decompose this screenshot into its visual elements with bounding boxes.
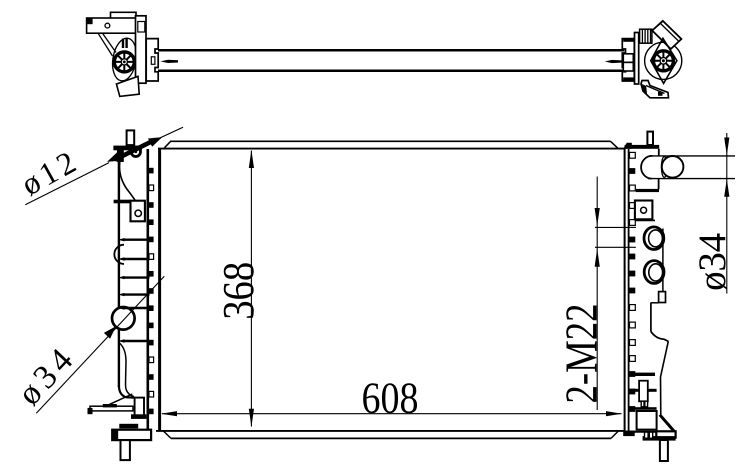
svg-text:2-M22: 2-M22 <box>555 304 606 404</box>
svg-text:ø34: ø34 <box>691 233 734 291</box>
svg-text:368: 368 <box>214 262 263 320</box>
svg-text:608: 608 <box>362 373 419 422</box>
